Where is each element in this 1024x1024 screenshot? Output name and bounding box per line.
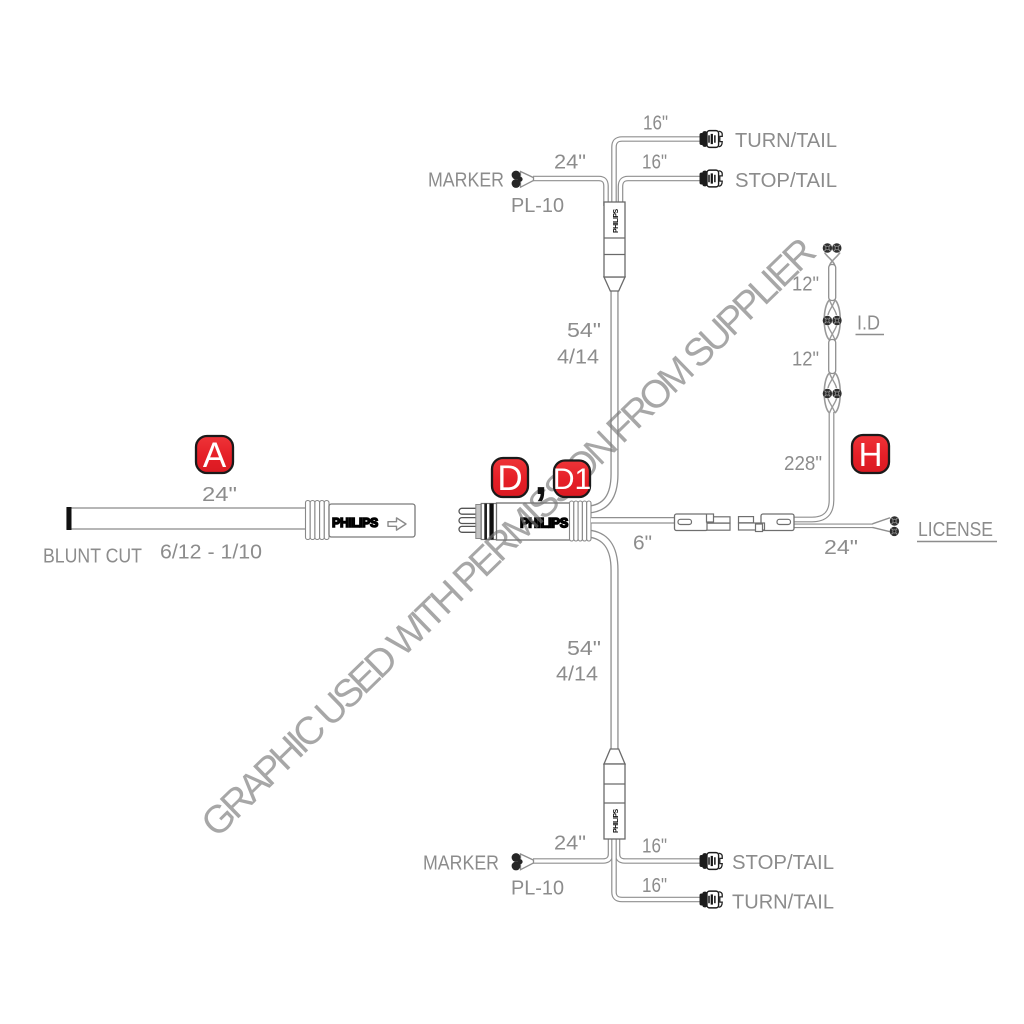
- svg-text:6/12 - 1/10: 6/12 - 1/10: [160, 542, 262, 564]
- svg-text:PHILIPS: PHILIPS: [332, 515, 379, 530]
- svg-text:4/14: 4/14: [556, 664, 598, 686]
- svg-text:MARKER: MARKER: [428, 170, 504, 192]
- svg-text:STOP/TAIL: STOP/TAIL: [735, 170, 837, 192]
- svg-text:BLUNT CUT: BLUNT CUT: [43, 546, 142, 568]
- svg-text:I.D: I.D: [857, 313, 880, 335]
- svg-text:TURN/TAIL: TURN/TAIL: [732, 892, 834, 914]
- svg-text:24": 24": [202, 484, 237, 506]
- svg-text:54": 54": [567, 638, 601, 660]
- svg-text:LICENSE: LICENSE: [918, 519, 993, 541]
- svg-text:54": 54": [567, 320, 601, 342]
- svg-text:24": 24": [824, 537, 858, 559]
- svg-text:A: A: [203, 436, 227, 475]
- svg-text:16": 16": [642, 152, 667, 174]
- svg-text:24": 24": [554, 833, 586, 855]
- svg-text:24": 24": [554, 152, 586, 174]
- svg-text:4/14: 4/14: [557, 347, 599, 369]
- svg-text:D1: D1: [553, 463, 591, 496]
- svg-text:228": 228": [784, 453, 822, 475]
- svg-text:PHILIPS: PHILIPS: [613, 808, 620, 833]
- svg-text:16": 16": [643, 113, 668, 135]
- svg-text:H: H: [859, 436, 883, 473]
- svg-text:MARKER: MARKER: [423, 853, 499, 875]
- svg-text:PL-10: PL-10: [511, 195, 564, 217]
- svg-text:6": 6": [633, 533, 652, 555]
- svg-text:16": 16": [642, 836, 667, 858]
- svg-text:,: ,: [535, 452, 548, 504]
- svg-text:12": 12": [792, 349, 819, 371]
- svg-text:STOP/TAIL: STOP/TAIL: [732, 852, 834, 874]
- svg-text:16": 16": [642, 875, 667, 897]
- svg-text:PL-10: PL-10: [511, 878, 564, 900]
- svg-text:TURN/TAIL: TURN/TAIL: [735, 130, 837, 152]
- svg-text:D: D: [497, 459, 522, 498]
- svg-text:PHILIPS: PHILIPS: [613, 208, 620, 233]
